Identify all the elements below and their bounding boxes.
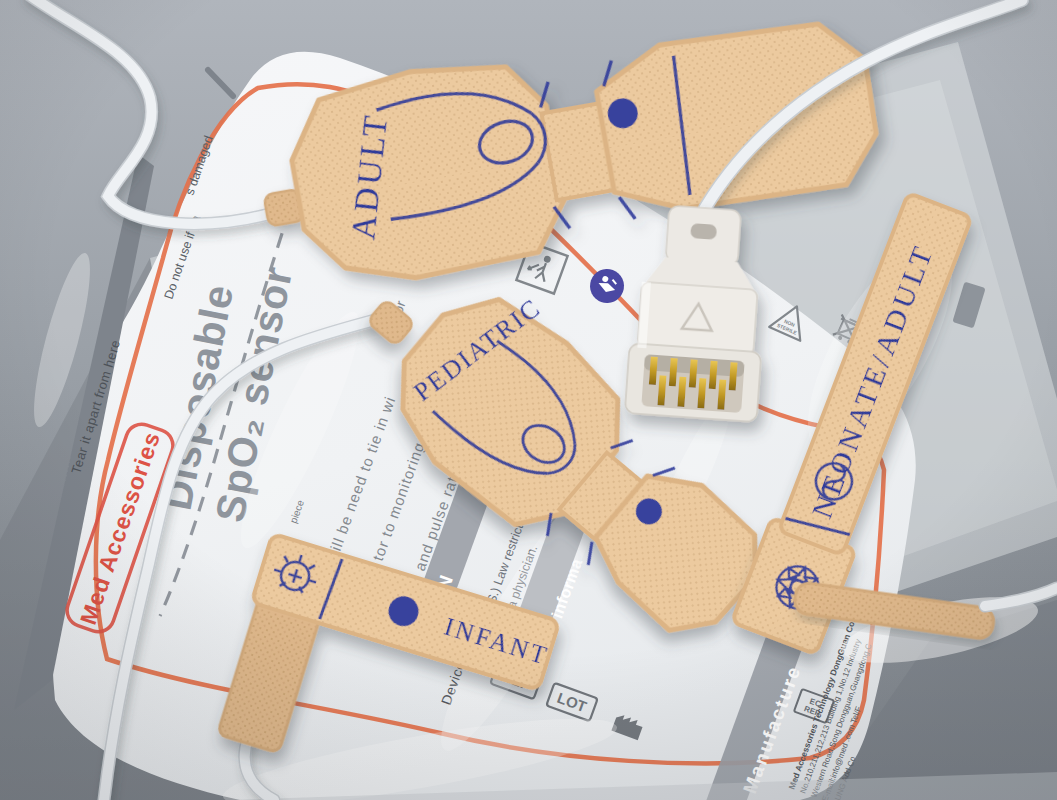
photo-canvas: Tear it apart from here Do not use if pa…: [0, 0, 1057, 800]
product-photo: Tear it apart from here Do not use if pa…: [0, 0, 1057, 800]
vignette-overlay: [0, 0, 1057, 800]
